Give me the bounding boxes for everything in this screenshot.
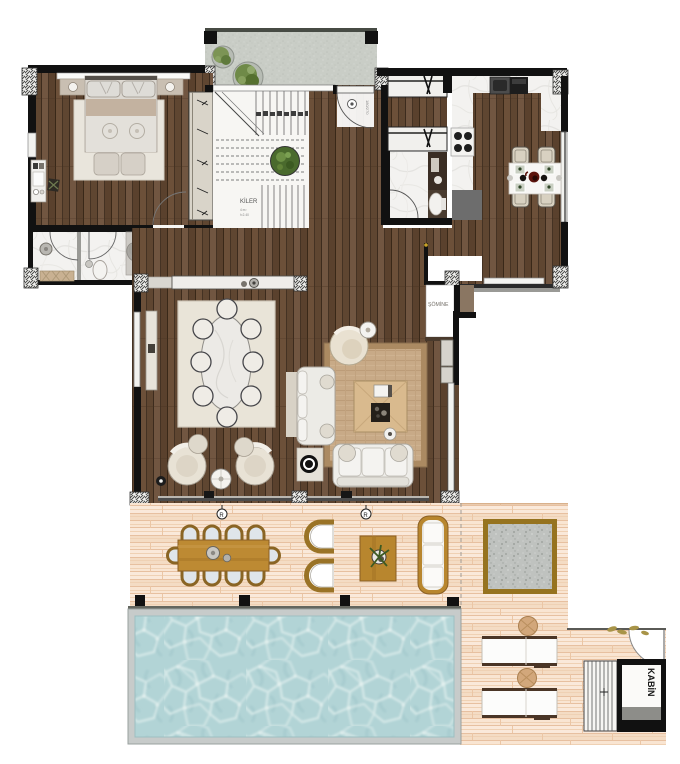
svg-text:R: R [219,513,224,519]
svg-text:R: R [363,513,368,519]
svg-text:180/270: 180/270 [365,100,370,115]
svg-text:h:2.40: h:2.40 [240,213,249,217]
svg-text:KABİN: KABİN [646,668,656,697]
svg-text:KİLER: KİLER [240,198,258,205]
svg-text:4 m²: 4 m² [240,208,246,212]
svg-text:ŞÖMİNE: ŞÖMİNE [428,301,449,308]
